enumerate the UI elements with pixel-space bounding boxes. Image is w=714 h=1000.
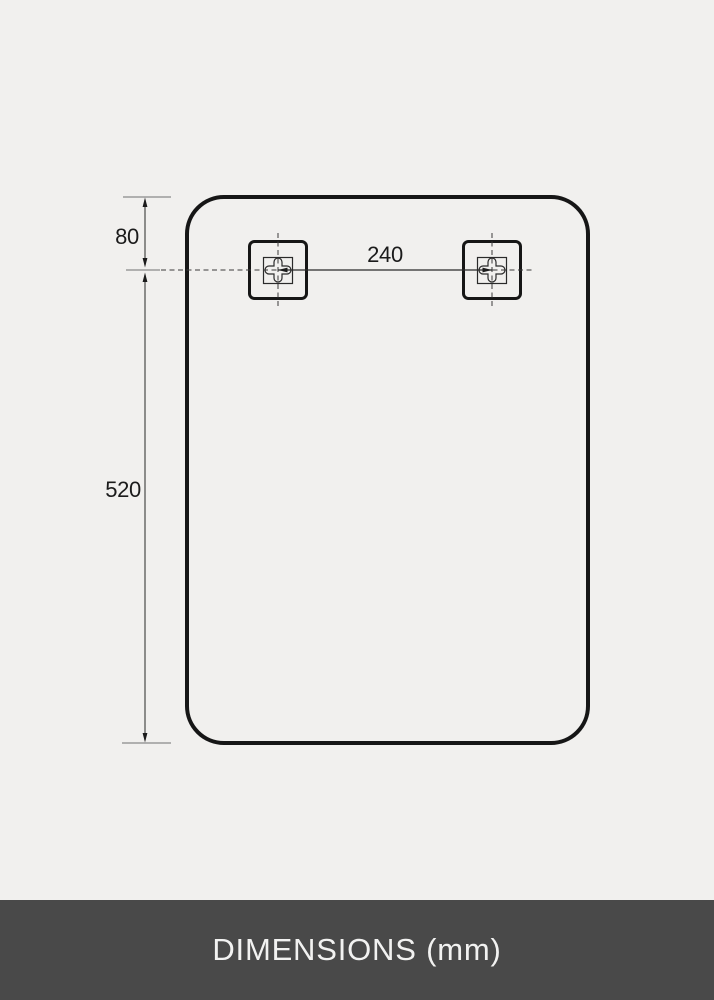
dimension-80 [143, 198, 148, 268]
dimension-240 [278, 268, 492, 273]
dimension-80-value: 80 [115, 224, 139, 250]
dimension-520-arrow-up-icon [143, 273, 148, 283]
mirror-outline [187, 197, 588, 743]
technical-drawing [0, 0, 714, 900]
dimension-240-arrow-left-icon [278, 268, 288, 273]
dimension-520-value: 520 [105, 477, 141, 503]
dimension-80-arrow-down-icon [143, 258, 148, 268]
dimension-80-arrow-up-icon [143, 198, 148, 208]
dimension-520-arrow-down-icon [143, 733, 148, 743]
dimension-diagram-page: 80 520 240 DIMENSIONS (mm) [0, 0, 714, 1000]
dimension-240-value: 240 [367, 242, 403, 268]
dimensions-footer-banner: DIMENSIONS (mm) [0, 900, 714, 1000]
dimension-240-arrow-right-icon [483, 268, 493, 273]
dimension-520 [143, 273, 148, 743]
footer-title: DIMENSIONS (mm) [212, 932, 501, 968]
